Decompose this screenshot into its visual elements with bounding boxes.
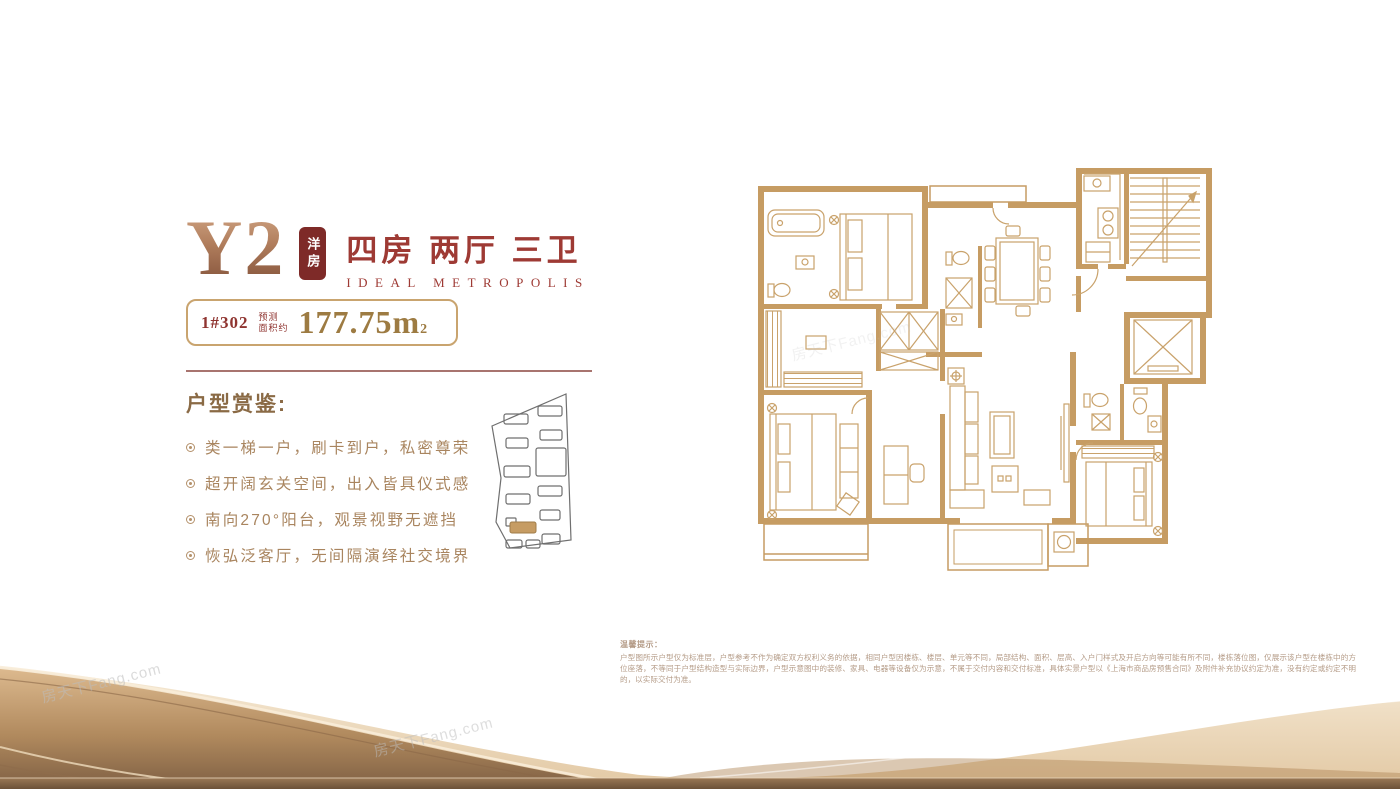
site-plan-map xyxy=(476,382,598,558)
title-column: 四房 两厅 三卫 IDEAL METROPOLIS xyxy=(346,225,589,291)
bullet-icon xyxy=(186,551,195,560)
list-item: 类一梯一户，刷卡到户，私密尊荣 xyxy=(186,436,486,458)
area-prefix-line1: 预测 xyxy=(259,312,289,323)
area-prefix-line2: 面积约 xyxy=(259,323,289,334)
decorative-wave xyxy=(0,597,1400,789)
area-value: 177.75m2 xyxy=(299,304,429,341)
page-title: 四房 两厅 三卫 xyxy=(346,225,589,270)
stairs xyxy=(1130,178,1200,266)
elevator xyxy=(1134,320,1192,374)
floor-plan xyxy=(740,156,1240,598)
divider-rule xyxy=(186,370,592,372)
bullet-icon xyxy=(186,515,195,524)
plan-furniture xyxy=(766,174,1200,552)
header: Y2 洋房 四房 两厅 三卫 IDEAL METROPOLIS xyxy=(186,212,590,291)
highlighted-building xyxy=(510,522,536,533)
highlights-heading: 户型赏鉴: xyxy=(186,388,486,418)
area-prefix: 预测 面积约 xyxy=(259,312,289,334)
brochure-page: Y2 洋房 四房 两厅 三卫 IDEAL METROPOLIS 1#302 预测… xyxy=(0,0,1400,789)
list-item: 超开阔玄关空间，出入皆具仪式感 xyxy=(186,472,486,494)
area-box: 1#302 预测 面积约 177.75m2 xyxy=(186,299,458,346)
list-item: 恢弘泛客厅，无间隔演绎社交境界 xyxy=(186,544,486,566)
highlights-list: 类一梯一户，刷卡到户，私密尊荣 超开阔玄关空间，出入皆具仪式感 南向270°阳台… xyxy=(186,436,486,566)
page-subtitle: IDEAL METROPOLIS xyxy=(346,275,589,291)
unit-label: 1#302 xyxy=(201,313,249,333)
plan-code: Y2 xyxy=(186,212,285,284)
list-item: 南向270°阳台，观景视野无遮挡 xyxy=(186,508,486,530)
bullet-icon xyxy=(186,443,195,452)
house-type-badge: 洋房 xyxy=(299,227,326,280)
highlights-section: 户型赏鉴: 类一梯一户，刷卡到户，私密尊荣 超开阔玄关空间，出入皆具仪式感 南向… xyxy=(186,388,486,580)
bullet-icon xyxy=(186,479,195,488)
